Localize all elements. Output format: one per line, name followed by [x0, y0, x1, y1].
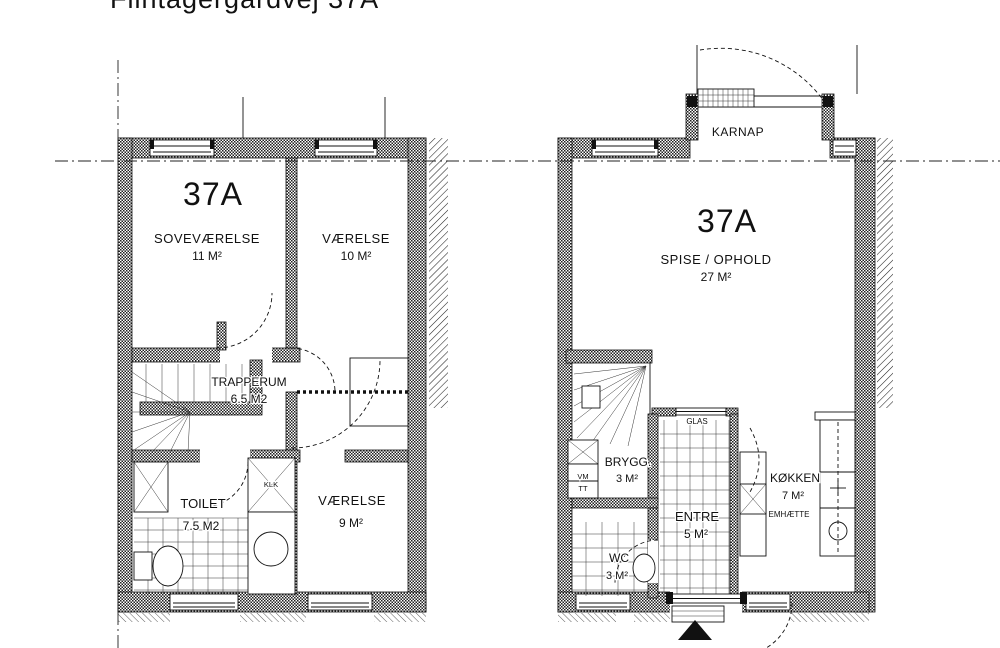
ground-hatch — [790, 613, 869, 622]
window — [308, 594, 372, 610]
wall — [572, 498, 658, 508]
wall — [217, 322, 226, 350]
floor-plan-sheet: Flintagergårdvej 37A — [0, 0, 1000, 648]
window — [592, 140, 658, 156]
room-label-vaerelse9: VÆRELSE — [318, 493, 386, 508]
room-label-koekken: KØKKEN — [770, 471, 820, 485]
unit-label: 37A — [697, 203, 757, 239]
window — [833, 140, 856, 156]
ground-hatch — [634, 613, 670, 622]
toilet-cistern — [134, 552, 152, 580]
party-wall-hatch — [877, 138, 893, 408]
wall — [286, 158, 297, 348]
room-area-toilet: 7.5 M2 — [183, 519, 220, 533]
glass-label: GLAS — [686, 417, 707, 426]
staircase — [574, 366, 646, 446]
room-area-entre: 5 M² — [684, 527, 708, 541]
ground-hatch — [374, 613, 426, 622]
karnap-label: KARNAP — [712, 125, 764, 139]
wall — [118, 592, 426, 612]
room-label-sovevaerelse: SOVEVÆRELSE — [154, 231, 260, 246]
window — [746, 594, 790, 610]
door-opening — [220, 346, 272, 364]
ground-hatch — [118, 613, 170, 622]
entrance-arrow-icon — [678, 620, 712, 640]
room-area-sovevaerelse: 11 M² — [192, 249, 222, 263]
ground-hatch — [240, 613, 306, 622]
room-area-trapperum: 6.5 M2 — [231, 392, 268, 406]
radiator — [698, 89, 754, 107]
window — [576, 594, 630, 610]
window — [315, 140, 377, 156]
washer-label: VM — [577, 472, 588, 481]
room-area-wc: 3 M² — [606, 570, 628, 582]
room-label-brygg: BRYGG. — [605, 455, 651, 469]
wall — [855, 138, 875, 612]
washbasin — [248, 512, 295, 594]
wall — [558, 138, 572, 612]
entrance-step — [672, 606, 724, 622]
room-label-vaerelse10: VÆRELSE — [322, 231, 390, 246]
glass-partition — [676, 408, 726, 415]
ground-hatch — [558, 613, 616, 622]
room-area-vaerelse10: 10 M² — [341, 249, 372, 263]
window — [150, 140, 214, 156]
toilet-bowl — [633, 554, 655, 582]
room-label-wc: WC — [609, 551, 629, 565]
party-wall-hatch — [429, 138, 448, 408]
wall — [118, 138, 132, 612]
dryer-label: TT — [578, 484, 588, 493]
closet-label: KLK — [264, 480, 278, 489]
room-area-vaerelse9: 9 M² — [339, 516, 363, 530]
kitchen-counter-left — [740, 428, 766, 556]
shower — [134, 462, 168, 512]
kitchen-counter-right — [815, 412, 855, 556]
room-area-koekken: 7 M² — [782, 490, 804, 502]
room-label-spise-ophold: SPISE / OPHOLD — [660, 252, 771, 267]
window — [170, 594, 238, 610]
room-label-trapperum: TRAPPERUM — [211, 375, 286, 389]
unit-label: 37A — [183, 176, 243, 212]
wall — [132, 348, 300, 362]
room-area-spise-ophold: 27 M² — [701, 270, 732, 284]
room-label-entre: ENTRE — [675, 509, 719, 524]
wall — [345, 450, 408, 462]
ground-floor-plan: KARNAP 37A SPISE / OPHOLD 27 M² BRYGG. 3… — [558, 45, 893, 648]
room-area-brygg: 3 M² — [616, 473, 638, 485]
wall — [566, 350, 652, 363]
door-opening — [200, 448, 250, 464]
wall — [408, 138, 426, 612]
room-label-toilet: TOILET — [180, 496, 225, 511]
wall — [286, 392, 297, 454]
upper-floor-plan: 37A SOVEVÆRELSE 11 M² VÆRELSE 10 M² TRAP… — [118, 138, 448, 622]
hood-label: EMHÆTTE — [769, 510, 810, 519]
floor-plan-drawing: 37A SOVEVÆRELSE 11 M² VÆRELSE 10 M² TRAP… — [0, 0, 1000, 648]
toilet-bowl — [153, 546, 183, 586]
wall — [730, 414, 738, 600]
staircase — [132, 360, 262, 452]
